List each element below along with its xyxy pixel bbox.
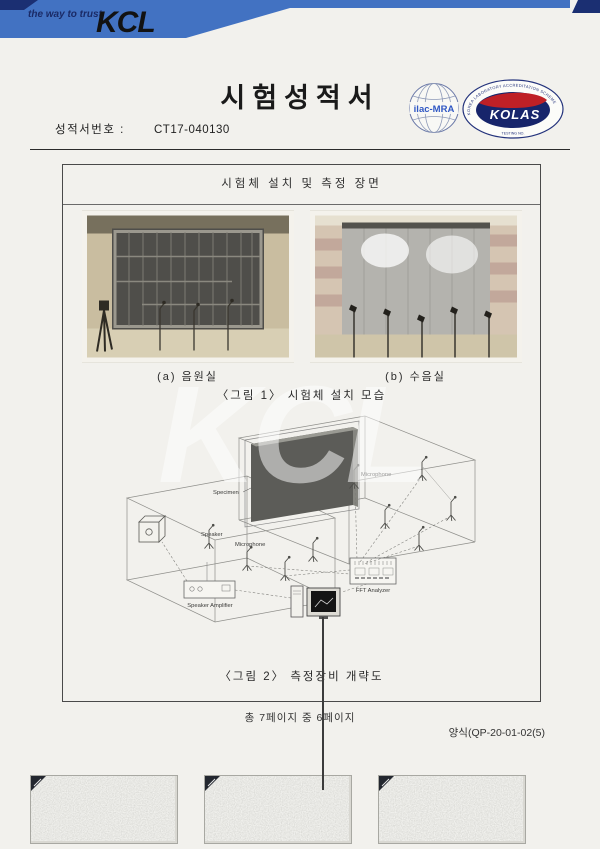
banner-corner-right: [572, 0, 600, 13]
scan-noise-block-3: [378, 775, 526, 844]
fft-analyzer-box: [350, 558, 396, 584]
computer-monitor: [291, 586, 340, 619]
report-number-row: 성적서번호 : CT17-040130: [55, 121, 230, 137]
ilac-mra-logo-icon: ilac-MRA: [408, 82, 460, 134]
scan-noise-block-2: [204, 775, 352, 844]
kolas-logo-icon: KOREA LABORATORY ACCREDITATION SCHEME KO…: [462, 79, 564, 139]
figure2-caption: 〈그림 2〉 측정장비 개략도: [63, 668, 540, 684]
photo-source-room: [82, 210, 294, 363]
ilac-mra-text: ilac-MRA: [414, 104, 455, 115]
speaker-box: [139, 516, 165, 542]
report-number-value: CT17-040130: [154, 124, 230, 136]
caption-source-room: (a) 음원실: [82, 368, 294, 384]
kolas-text: KOLAS: [490, 107, 541, 122]
caption-receiving-room: (b) 수음실: [310, 368, 522, 384]
figure-box: 시험체 설치 및 측정 장면: [62, 164, 541, 702]
page-count-text: 총 7페이지 중 6페이지: [0, 710, 600, 725]
speaker-amplifier-box: [184, 562, 235, 598]
figure-box-header: 시험체 설치 및 측정 장면: [63, 165, 540, 205]
scanned-test-report-page: the way to trust KCL 시험성적서 ilac-MRA KORE…: [0, 0, 600, 849]
label-specimen: Specimen: [213, 490, 239, 496]
label-microphone-receiving: Microphone: [361, 472, 391, 478]
label-fft-analyzer: FFT Analyzer: [355, 588, 389, 594]
scan-noise-block-1: [30, 775, 178, 844]
photo-captions-row: (a) 음원실 (b) 수음실: [63, 368, 540, 384]
label-speaker-amplifier: Speaker Amplifier: [187, 603, 232, 609]
label-speaker: Speaker: [201, 532, 223, 538]
tagline-text: the way to trust: [28, 9, 103, 20]
header-rule: [30, 149, 570, 150]
photo-receiving-room: [310, 210, 522, 363]
figure1-caption: 〈그림 1〉 시험체 설치 모습: [63, 387, 540, 403]
photos-row: [63, 210, 540, 363]
form-number: 양식(QP-20-01-02(5): [449, 725, 545, 740]
monitor-cable-line: [322, 617, 324, 790]
report-number-label: 성적서번호 :: [55, 124, 125, 136]
specimen-panel: [245, 421, 359, 527]
figure2-diagram: Specimen Microphone Speaker Microphone F…: [117, 410, 487, 662]
kolas-bottom-text: TESTING NO.: [502, 132, 525, 136]
label-microphone-source: Microphone: [235, 542, 265, 548]
header-banner: the way to trust KCL: [0, 0, 600, 42]
kcl-logo: KCL: [96, 6, 155, 39]
